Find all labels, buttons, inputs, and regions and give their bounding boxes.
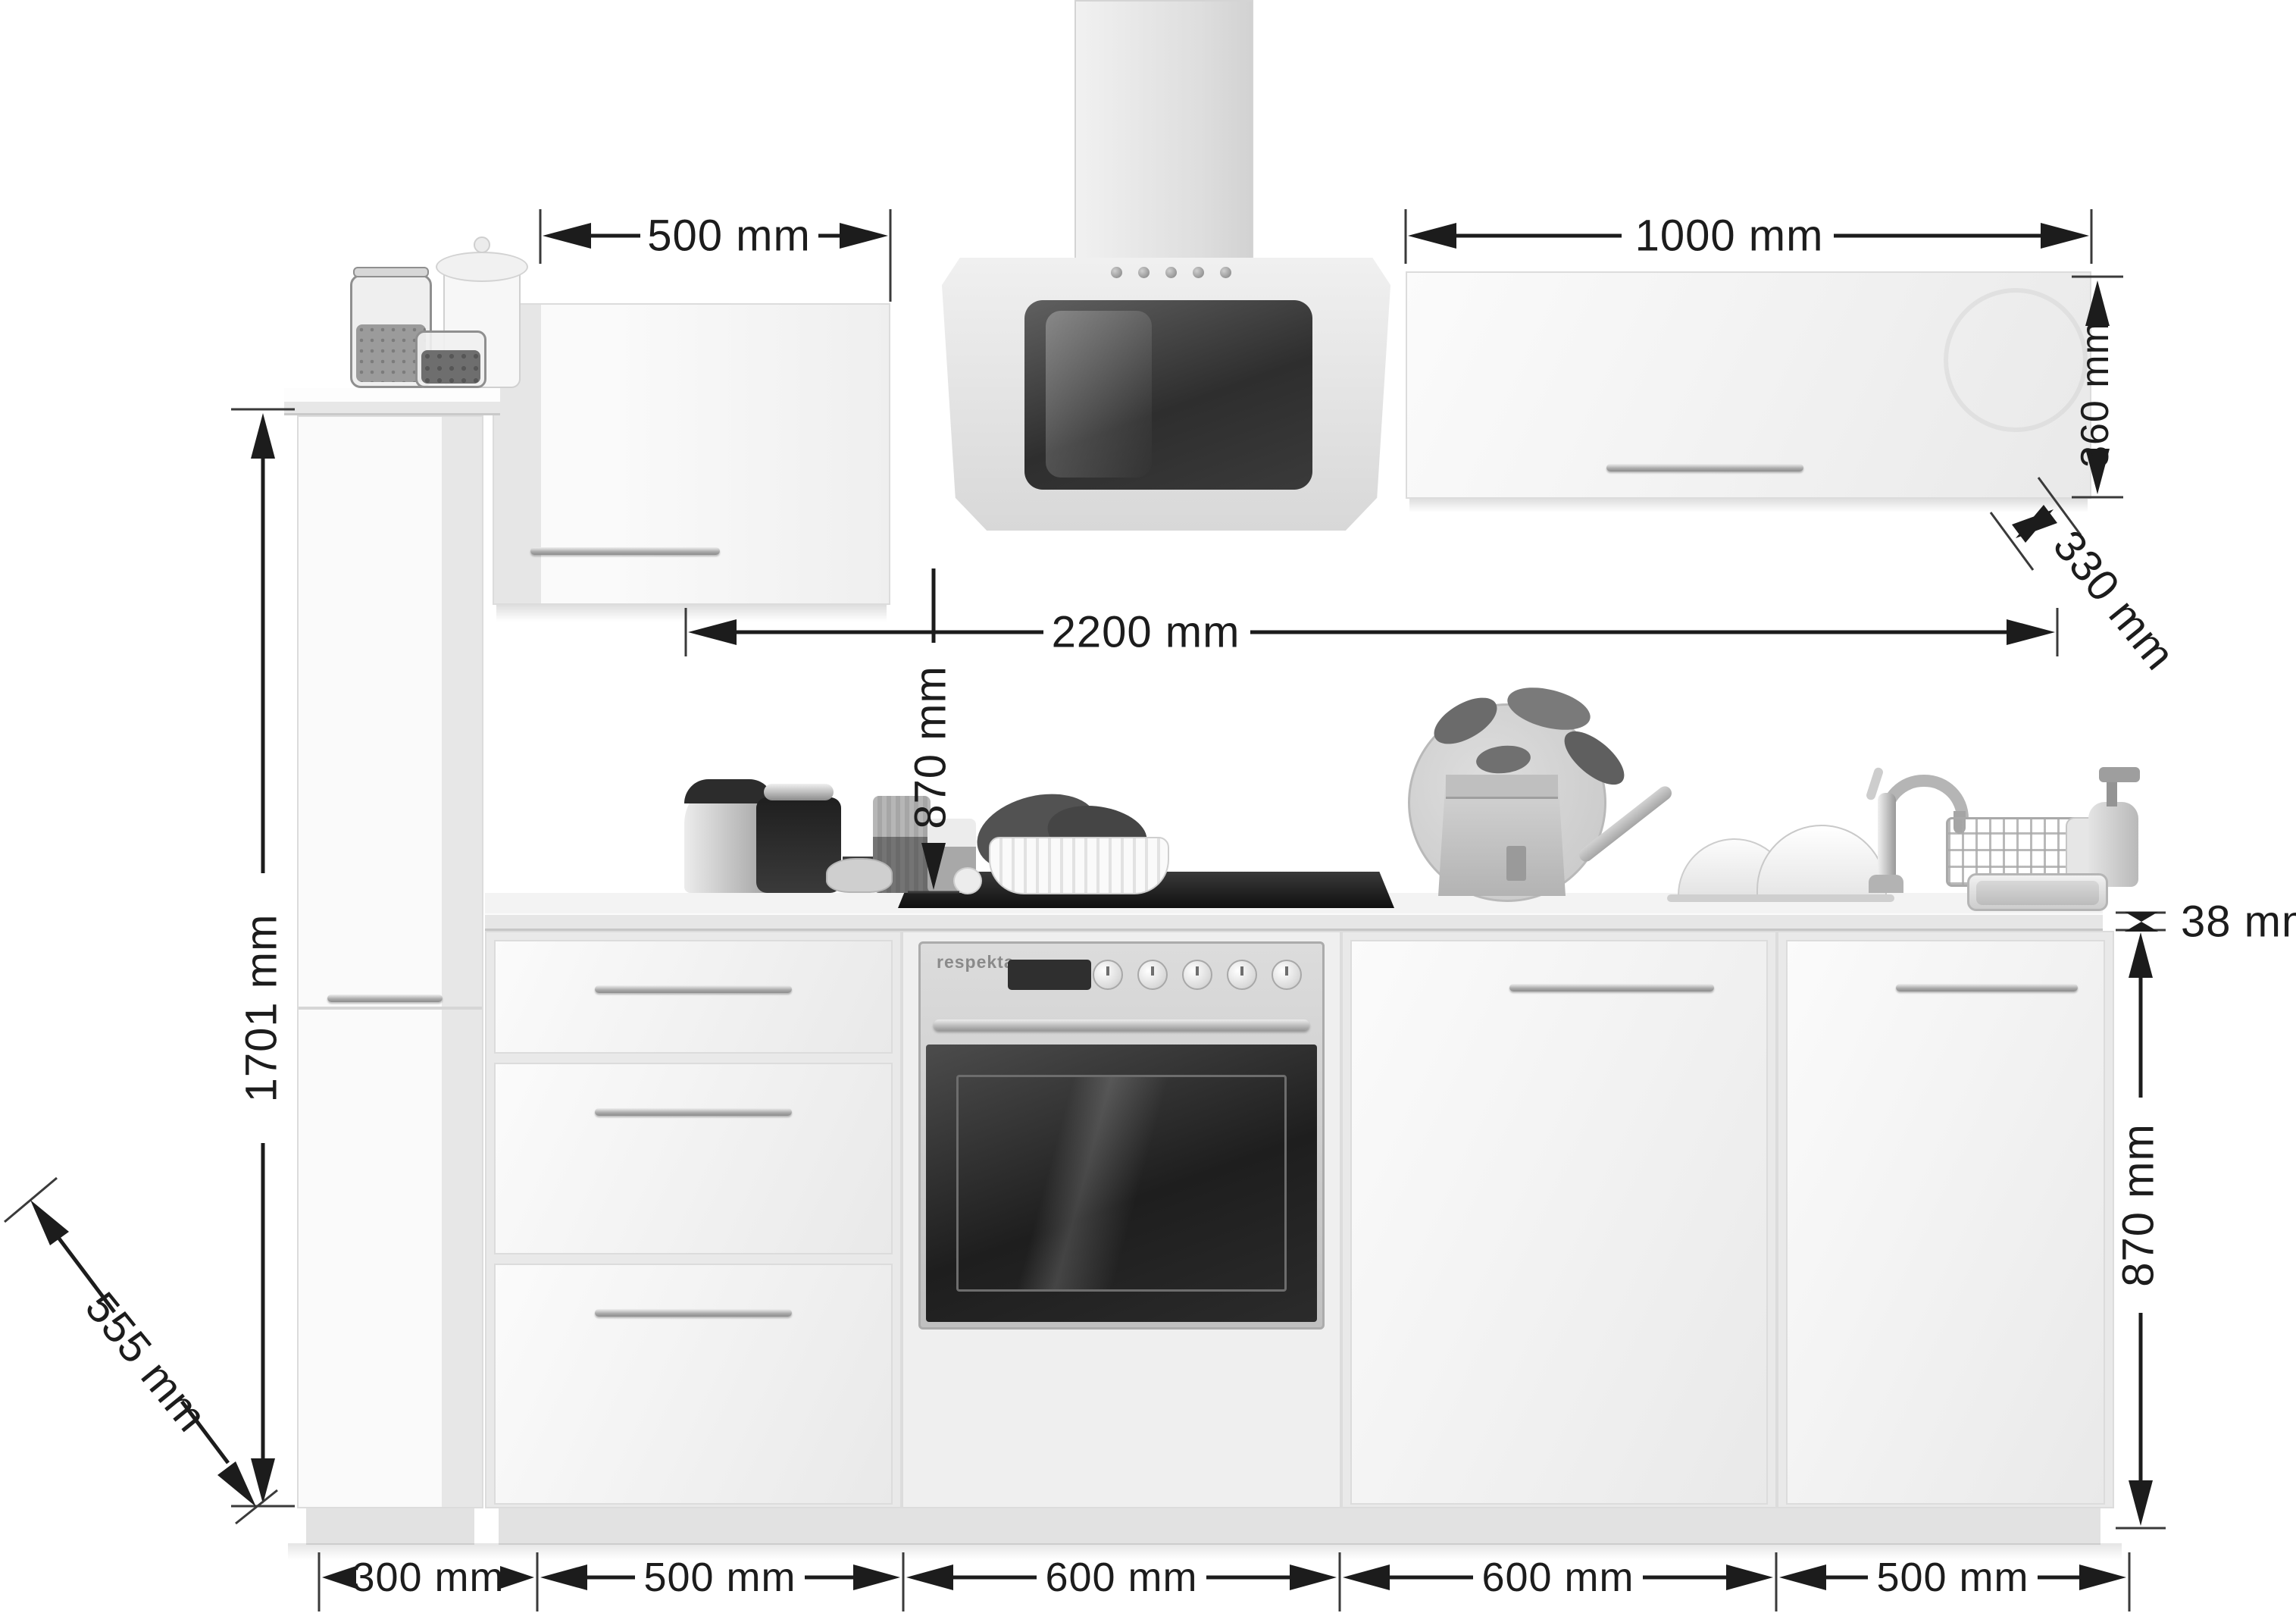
jar-small-contents [421,350,480,384]
dishwasher-door [1350,940,1768,1505]
faucet-column [1878,793,1896,882]
wall-cabinet-left-handle [530,547,720,555]
bread-loaf [826,858,893,893]
dim-label-tall-cabinet-height: 1701 mm [236,914,287,1103]
hood-button-5 [1220,267,1231,278]
hood-chimney [1074,0,1253,264]
dim-label-worktop-thickness: 38 mm [2181,897,2296,947]
dishwasher-handle [1509,984,1714,991]
dim-label-wall-right-height: 360 mm [2072,321,2118,468]
tall-cabinet-plinth [306,1508,474,1545]
garlic-bulb [953,867,982,894]
coffee-machine-lever [764,784,834,800]
dim-label-wall-right-width: 1000 mm [1635,211,1824,262]
sink-unit-handle [1896,984,2078,991]
hood-button-1 [1111,267,1122,278]
dim-bottom-arrows [322,1564,2126,1590]
sink-unit-door [1786,940,2105,1505]
hood-button-2 [1138,267,1150,278]
soap-pump-stem [2107,779,2117,806]
canister-lid-knob [474,236,490,253]
drawer-2-handle [595,1108,792,1116]
oven-knob-1 [1093,960,1123,990]
soap-pump-head [2099,767,2140,782]
dim-label-segment-500a: 500 mm [643,1554,796,1601]
paper-bag-fold [1446,775,1558,799]
wall-cabinet-left [493,303,890,605]
dim-label-segment-500b: 500 mm [1876,1554,2029,1601]
floor-shadow [288,1543,2122,1560]
dish-rack-base [1667,894,1894,902]
oven-brand-label: respekta [937,952,1015,972]
paper-bag-label [1506,846,1526,881]
plate-dome-front [1756,825,1887,897]
oven-door-window [956,1075,1287,1292]
dim-label-segment-600b: 600 mm [1481,1554,1634,1601]
wall-cabinet-right-handle [1606,464,1803,471]
dim-label-base-height: 870 mm [2113,1123,2164,1287]
hood-glass-reflection [1046,311,1152,478]
oven-knob-5 [1272,960,1302,990]
tall-cabinet [297,415,483,1508]
oven-handle [934,1019,1309,1030]
oven-knob-4 [1227,960,1257,990]
canister-lid [436,252,528,282]
sink-basin-inner [1976,881,2099,905]
kitchen-dimension-diagram: respekta [0,0,2296,1613]
faucet-base [1869,875,1903,893]
dim-label-wall-to-worktop: 870 mm [906,666,956,829]
drawer-2 [494,1063,893,1254]
tall-cabinet-door-gap [299,1007,482,1010]
dim-label-worktop-depth: 555 mm [75,1283,217,1442]
drawer-1-handle [595,985,792,993]
dim-label-segment-300: 300 mm [352,1554,504,1601]
wall-cabinet-left-shadow [496,605,887,622]
hood-button-4 [1193,267,1204,278]
tall-cabinet-handle [327,994,443,1002]
dim-38-lines [2116,912,2166,932]
drawer-3-handle [595,1309,792,1317]
ribbed-serving-bowl [989,837,1169,894]
drawer-3 [494,1264,893,1505]
dim-label-segment-600a: 600 mm [1045,1554,1197,1601]
tall-cabinet-worktop [284,388,500,415]
oven-display [1008,960,1091,990]
oven-knob-3 [1182,960,1212,990]
clock-reflection [1944,288,2088,432]
dim-label-run-width: 2200 mm [1052,607,1240,658]
dim-2200-lines [686,608,2057,656]
dim-label-wall-left-width: 500 mm [647,211,811,262]
dim-label-wall-depth: 330 mm [2043,521,2185,680]
wall-cabinet-right-shadow [1409,499,2088,512]
drawer-1 [494,940,893,1054]
plinth [499,1508,2100,1545]
hood-button-3 [1165,267,1177,278]
dim-bottom-ticks [319,1552,2129,1611]
oven-knob-2 [1137,960,1168,990]
jar-large-clamp-lid [353,267,429,277]
